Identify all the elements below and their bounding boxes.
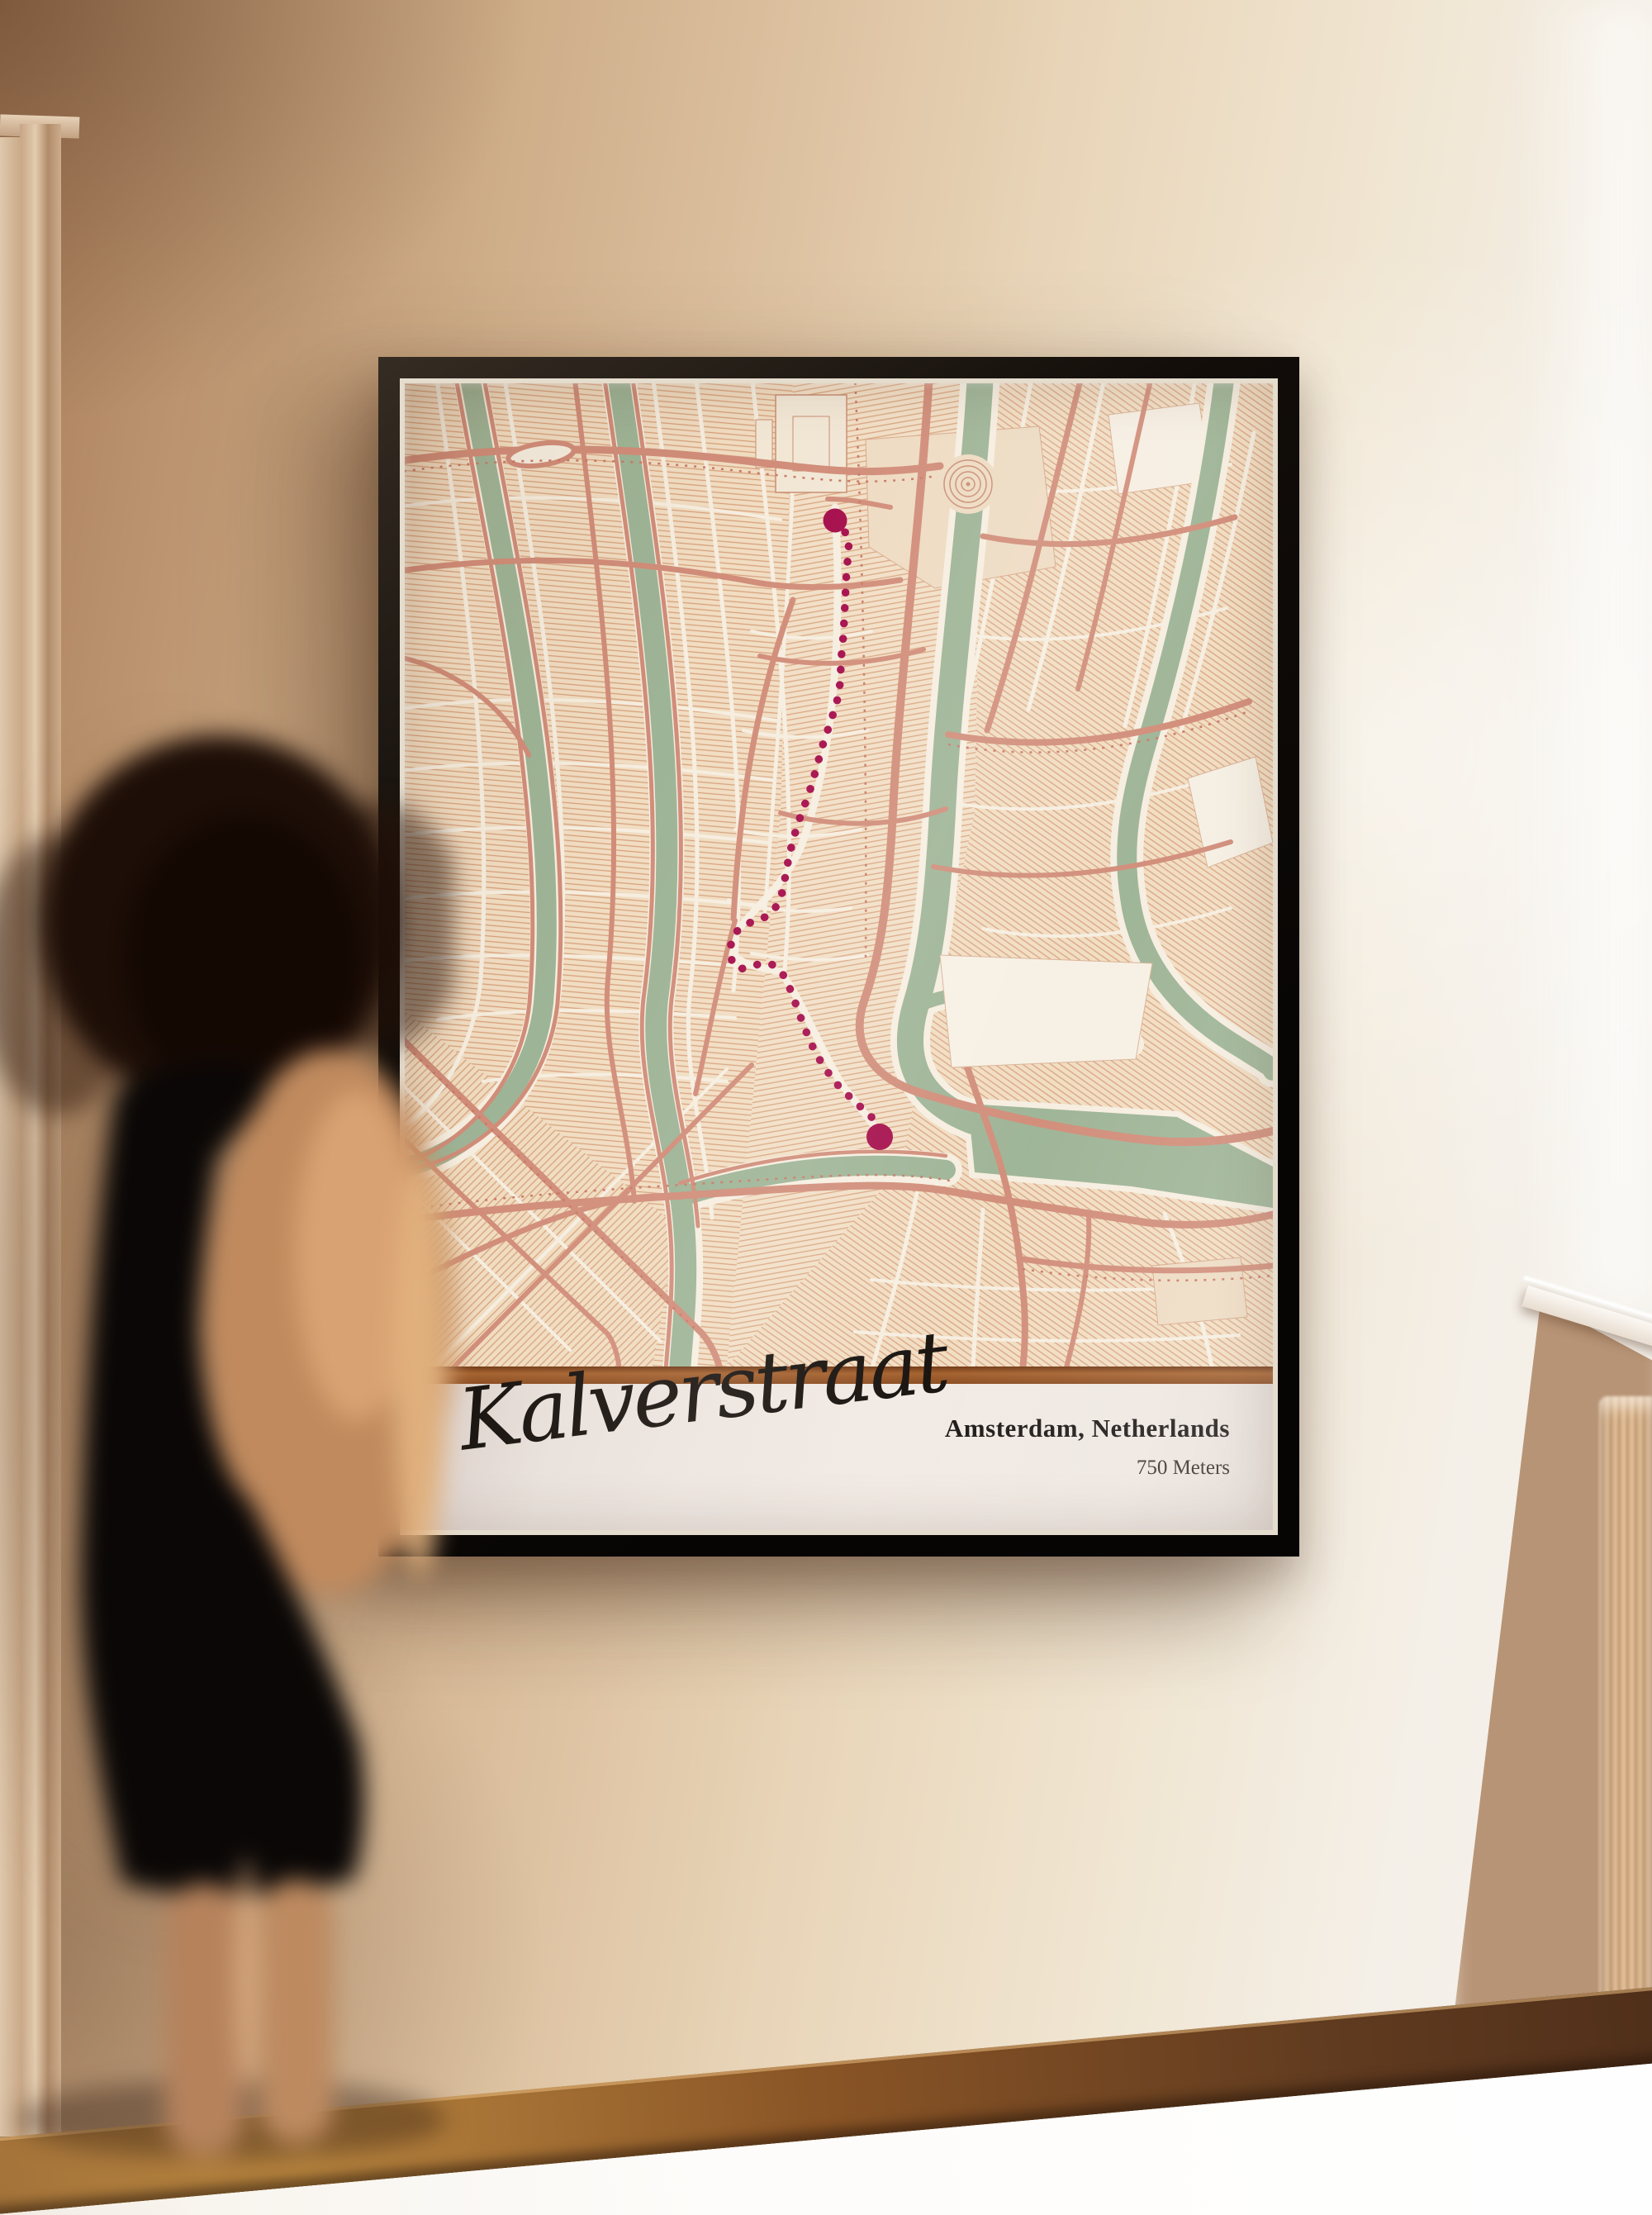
arm-rim-light bbox=[393, 1165, 446, 1578]
caption-right-block: Amsterdam, Netherlands 750 Meters bbox=[945, 1414, 1230, 1480]
route-end-marker bbox=[866, 1124, 893, 1150]
leg-highlight bbox=[235, 1859, 258, 2090]
blurred-woman bbox=[0, 686, 454, 2206]
leg-right bbox=[260, 1880, 333, 2144]
poster-mat: Kalverstraat Amsterdam, Netherlands 750 … bbox=[400, 378, 1278, 1535]
gallery-wall-photo: Kalverstraat Amsterdam, Netherlands 750 … bbox=[0, 0, 1652, 2215]
poster-location: Amsterdam, Netherlands bbox=[945, 1414, 1230, 1443]
poster-distance: 750 Meters bbox=[945, 1457, 1230, 1480]
radiator bbox=[1599, 1396, 1652, 2032]
map-park-spiral bbox=[938, 454, 998, 514]
city-map bbox=[405, 383, 1273, 1367]
framed-map-poster: Kalverstraat Amsterdam, Netherlands 750 … bbox=[378, 357, 1299, 1557]
map-white-block bbox=[940, 955, 1152, 1067]
leg-left bbox=[165, 1884, 244, 2156]
window-light bbox=[1520, 0, 1652, 1305]
map-area bbox=[405, 383, 1273, 1367]
route-start-marker bbox=[824, 509, 847, 533]
poster-caption: Kalverstraat Amsterdam, Netherlands 750 … bbox=[405, 1384, 1273, 1530]
